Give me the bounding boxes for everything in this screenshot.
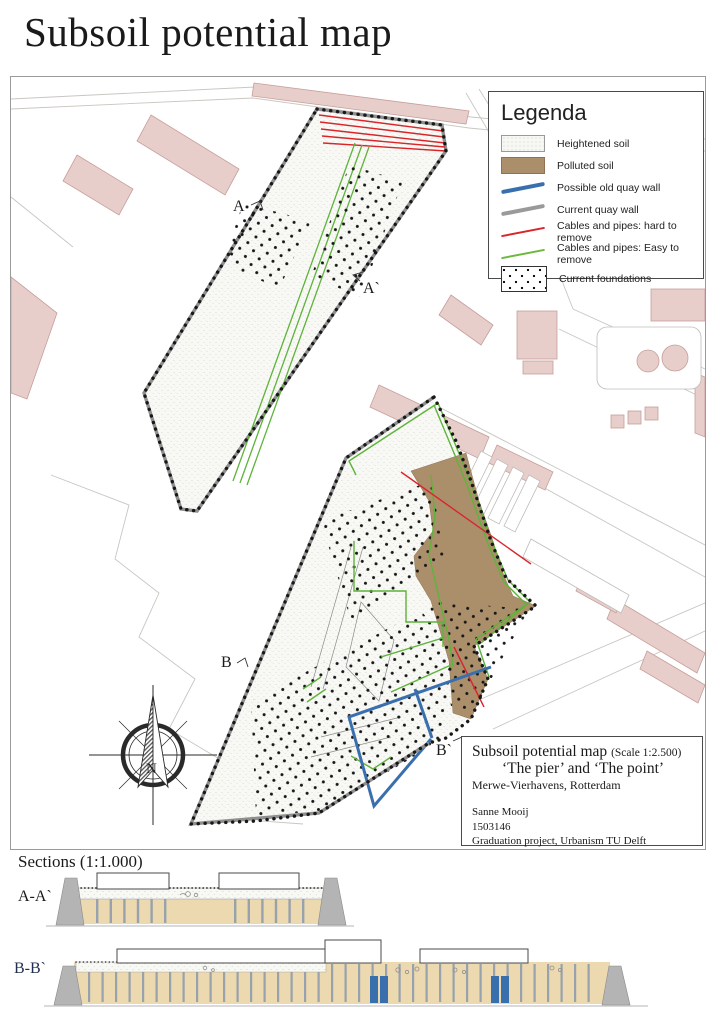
map-frame: A A` B B` N Legenda Heightened soil — [10, 76, 706, 850]
label-a-prime: A` — [363, 280, 380, 297]
current-foundations-swatch — [501, 266, 547, 292]
legend-item: Current quay wall — [501, 200, 693, 219]
title-block-author: Sanne Mooij — [472, 805, 694, 820]
building-outline — [420, 949, 528, 963]
building-outline — [219, 873, 299, 889]
title-block-subtitle: ‘The pier’ and ‘The point’ — [472, 760, 694, 778]
legend-item-label: Polluted soil — [557, 160, 614, 172]
legend-item-label: Heightened soil — [557, 138, 629, 150]
title-block-scale: (Scale 1:2.500) — [611, 747, 681, 759]
building-outline — [97, 873, 169, 889]
label-a: A — [233, 198, 245, 215]
label-b: B — [221, 654, 232, 671]
legend-item: Cables and pipes: hard to remove — [501, 222, 693, 241]
legend-item-label: Current foundations — [559, 273, 651, 285]
section-b-drawing — [44, 940, 648, 1006]
quay-wall-right — [318, 878, 346, 925]
legend-item: Current foundations — [501, 266, 693, 292]
legend-title: Legenda — [501, 100, 693, 126]
title-block-title-line: Subsoil potential map (Scale 1:2.500) — [472, 743, 694, 761]
compass-n-label: N — [146, 761, 157, 777]
sections-drawings — [0, 848, 714, 1024]
poster-page: { "page": { "title": "Subsoil potential … — [0, 0, 714, 1024]
quay-wall-left — [56, 878, 84, 925]
title-block-student-number: 1503146 — [472, 820, 694, 835]
title-block-location: Merwe-Vierhavens, Rotterdam — [472, 778, 694, 793]
polluted-soil-swatch — [501, 157, 545, 174]
legend-item: Heightened soil — [501, 134, 693, 153]
building-outline — [117, 949, 325, 963]
old-quay-wall-swatch — [501, 181, 545, 193]
legend-item: Possible old quay wall — [501, 178, 693, 197]
title-block-project: Graduation project, Urbanism TU Delft — [472, 834, 694, 849]
legend-item: Polluted soil — [501, 156, 693, 175]
legend-item: Cables and pipes: Easy to remove — [501, 244, 693, 263]
heightened-soil-swatch — [501, 135, 545, 152]
cables-hard-swatch — [501, 226, 545, 236]
legend-item-label: Current quay wall — [557, 204, 639, 216]
legend-item-label: Cables and pipes: Easy to remove — [557, 242, 693, 266]
current-quay-wall-swatch — [501, 203, 545, 215]
label-b-prime: B` — [436, 742, 452, 759]
legend-item-label: Cables and pipes: hard to remove — [557, 220, 693, 244]
title-block-title: Subsoil potential map — [472, 743, 611, 760]
legend-item-label: Possible old quay wall — [557, 182, 660, 194]
cables-easy-swatch — [501, 248, 545, 258]
legend: Legenda Heightened soil Polluted soil Po… — [488, 91, 704, 279]
building-outline — [325, 940, 381, 963]
page-title: Subsoil potential map — [24, 8, 392, 56]
title-block: Subsoil potential map (Scale 1:2.500) ‘T… — [461, 736, 703, 846]
section-a-drawing — [46, 873, 354, 926]
